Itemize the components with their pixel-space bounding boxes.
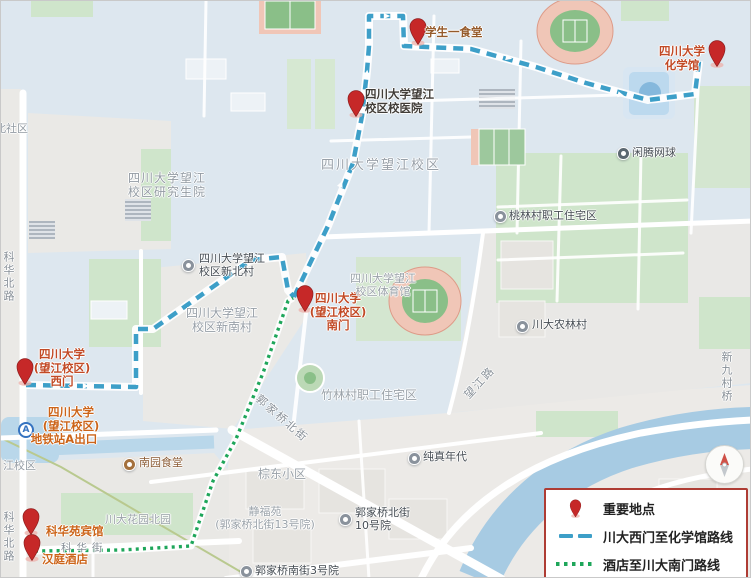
label-line: 校区体育馆	[349, 286, 417, 299]
label-kehuayuan-hotel: 科华苑宾馆	[46, 525, 104, 539]
label-line: 四川大学	[40, 406, 102, 420]
legend-panel: 重要地点 川大西门至化学馆路线 酒店至川大南门路线	[544, 488, 748, 578]
label-line: 四川大学望江	[365, 88, 434, 102]
label-taolincun: 桃林村职工住宅区	[509, 210, 597, 223]
poi-icon[interactable]	[182, 259, 195, 272]
label-line: 西门	[31, 375, 93, 389]
road-label-kehua-street: 科华街	[61, 542, 108, 554]
label-line: 校区新北村	[199, 266, 265, 279]
pin-campus-hospital[interactable]	[345, 88, 367, 118]
label-beishequ: 北社区	[0, 123, 28, 136]
legend-label-important-places: 重要地点	[603, 499, 655, 518]
label-3-hao-yuan: 郭家桥南街3号院	[255, 565, 339, 578]
poi-icon[interactable]	[617, 147, 630, 160]
road-label-kehua-north-1: 科华北路	[1, 251, 14, 303]
label-gymnasium: 四川大学望江 校区体育馆	[349, 273, 417, 299]
label-line: 校区校医院	[365, 102, 434, 116]
label-wangjiang-campus: 四川大学望江校区	[321, 158, 441, 173]
label-west-gate: 四川大学 (望江校区) 西门	[31, 348, 93, 389]
label-line: 校区新南村	[176, 320, 268, 334]
poi-icon[interactable]	[240, 565, 253, 578]
legend-blue-dash-icon	[556, 534, 594, 538]
legend-row-pins: 重要地点	[556, 497, 736, 519]
label-line: 四川大学望江	[176, 306, 268, 320]
label-line: 地铁站A出口	[26, 433, 102, 447]
label-huayuan-beiyuan: 川大花园北园	[105, 514, 171, 527]
label-nanyuan-canteen: 南园食堂	[139, 457, 183, 470]
road-label-kehua-north-2: 科华北路	[1, 511, 14, 563]
label-jingfuyuan: 静福苑 (郭家桥北街13号院)	[213, 506, 317, 532]
compass-icon[interactable]	[705, 445, 744, 484]
label-line: 四川大学	[653, 45, 711, 59]
legend-row-blue-route: 川大西门至化学馆路线	[556, 525, 736, 547]
compass-needle	[706, 446, 743, 483]
poi-icon[interactable]	[494, 210, 507, 223]
label-hanting-hotel: 汉庭酒店	[42, 553, 88, 567]
label-chemistry-building: 四川大学 化学馆	[653, 45, 711, 72]
label-line: 四川大学望江	[119, 171, 215, 185]
label-line: 10号院	[355, 520, 410, 533]
poi-icon[interactable]	[408, 452, 421, 465]
road-label-xinjiucun-bridge: 新九村桥	[719, 351, 732, 403]
pin-icon	[345, 88, 367, 118]
label-line: 南门	[309, 319, 367, 333]
label-student-canteen: 学生一食堂	[425, 26, 483, 40]
map-canvas[interactable]: 学生一食堂 四川大学 化学馆 四川大学望江 校区校医院 四川大学 (望江校区) …	[0, 0, 751, 578]
label-xinbeicun: 四川大学望江 校区新北村	[199, 253, 265, 279]
pin-icon	[21, 532, 43, 562]
label-chunzhen: 纯真年代	[423, 451, 467, 464]
legend-label-blue-route: 川大西门至化学馆路线	[603, 527, 733, 546]
label-line: (郭家桥北街13号院)	[213, 519, 317, 532]
label-zongdong: 棕东小区	[258, 467, 306, 481]
label-nonglincun: 川大农林村	[532, 319, 587, 332]
label-xianteng-tennis: 闲腾网球	[632, 147, 676, 160]
label-metro-station: 四川大学 (望江校区) 地铁站A出口	[26, 406, 102, 447]
label-zhulincun: 竹林村职工住宅区	[321, 388, 417, 402]
pin-hanting-hotel[interactable]	[21, 532, 43, 562]
legend-row-green-route: 酒店至川大南门路线	[556, 553, 736, 575]
label-graduate-school: 四川大学望江 校区研究生院	[119, 171, 215, 199]
label-line: 校区研究生院	[119, 185, 215, 199]
legend-label-green-route: 酒店至川大南门路线	[603, 555, 720, 574]
label-xinnancun: 四川大学望江 校区新南村	[176, 306, 268, 334]
label-line: 四川大学	[31, 348, 93, 362]
label-line: 化学馆	[653, 59, 711, 73]
label-10-hao-yuan: 郭家桥北街 10号院	[355, 507, 410, 533]
poi-icon[interactable]	[516, 320, 529, 333]
label-campus-hospital: 四川大学望江 校区校医院	[365, 88, 434, 115]
legend-pin-icon	[556, 498, 594, 518]
label-jiangxiaoqu: 江校区	[3, 460, 36, 473]
legend-green-dot-icon	[556, 562, 594, 566]
poi-icon[interactable]	[339, 513, 352, 526]
poi-icon[interactable]	[123, 458, 136, 471]
